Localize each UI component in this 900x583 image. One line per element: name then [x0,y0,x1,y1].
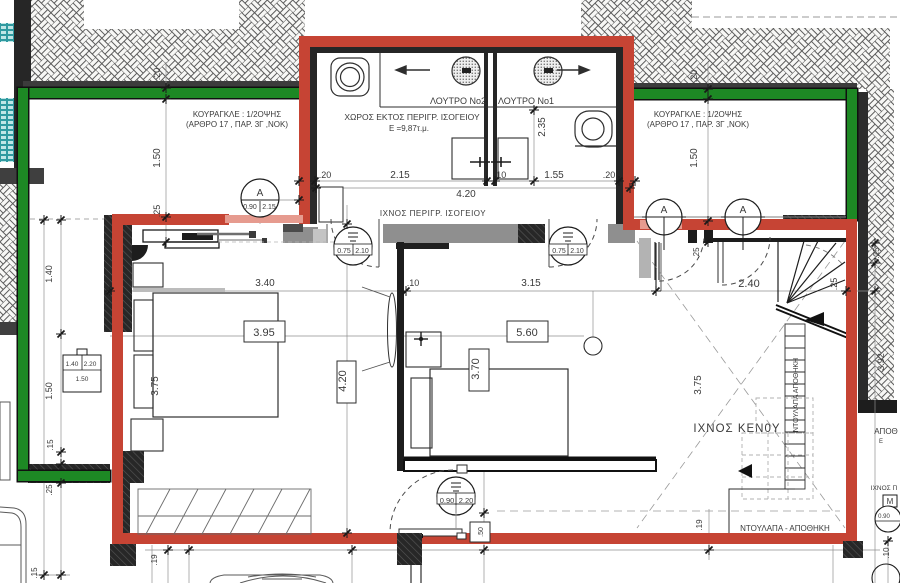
svg-text:3.75: 3.75 [693,375,704,395]
svg-text:.20: .20 [603,170,616,180]
svg-text:.15: .15 [46,439,55,451]
svg-text:2.10: 2.10 [355,248,369,255]
svg-text:3.92: 3.92 [876,353,886,371]
svg-text:.25: .25 [692,247,701,259]
svg-text:1.40: 1.40 [66,361,79,368]
svg-text:ΙΧΝΟΣ ΚΕΝ0Υ: ΙΧΝΟΣ ΚΕΝ0Υ [693,423,780,435]
svg-text:2.40: 2.40 [738,278,759,290]
svg-text:.10: .10 [407,278,420,288]
svg-text:.20: .20 [152,68,162,81]
svg-text:.19: .19 [150,554,159,566]
svg-text:(ΑΡΘΡΟ 17 , ΠΑΡ. 3Γ ,ΝΟΚ): (ΑΡΘΡΟ 17 , ΠΑΡ. 3Γ ,ΝΟΚ) [647,120,749,129]
svg-text:.20: .20 [319,170,332,180]
svg-text:Μ: Μ [887,497,894,506]
svg-text:Ε =9,87τ.μ.: Ε =9,87τ.μ. [389,124,429,133]
svg-text:0.90: 0.90 [243,204,257,211]
svg-text:.15: .15 [30,567,39,579]
svg-text:0.75: 0.75 [552,248,566,255]
svg-text:1.40: 1.40 [44,265,54,283]
svg-text:.25: .25 [152,205,162,218]
svg-text:ΙΧΝΟΣ ΠΕΡΙΓΡ. ΙΣΟΓΕΙΟΥ: ΙΧΝΟΣ ΠΕΡΙΓΡ. ΙΣΟΓΕΙΟΥ [380,209,486,218]
svg-text:A: A [740,205,747,216]
svg-text:ΧΩΡΟΣ ΕΚΤΟΣ ΠΕΡΙΓΡ. ΙΣΟΓΕΙΟΥ: ΧΩΡΟΣ ΕΚΤΟΣ ΠΕΡΙΓΡ. ΙΣΟΓΕΙΟΥ [344,112,480,122]
svg-text:3.95: 3.95 [253,327,274,339]
svg-text:Ε: Ε [879,439,883,445]
svg-text:.10: .10 [882,547,891,559]
svg-text:ΑΠΟΘ: ΑΠΟΘ [874,427,898,436]
svg-text:3.15: 3.15 [521,278,541,289]
svg-text:.20: .20 [689,70,699,83]
svg-text:3.75: 3.75 [150,376,161,396]
svg-text:ΚΟΥΡΑΓΚΛΕ : 1/2ΟΨΗΣ: ΚΟΥΡΑΓΚΛΕ : 1/2ΟΨΗΣ [654,110,742,119]
svg-text:5.60: 5.60 [516,327,537,339]
svg-text:ΝΤΟΥΛΑΠΑ ΑΠΟΘΗΚΗ: ΝΤΟΥΛΑΠΑ ΑΠΟΘΗΚΗ [793,358,800,432]
svg-text:0.90: 0.90 [440,496,455,505]
svg-text:4.20: 4.20 [337,370,349,391]
svg-text:.25: .25 [45,484,54,496]
svg-text:.19: .19 [695,519,704,531]
svg-text:ΛΟΥΤΡΟ No2: ΛΟΥΤΡΟ No2 [430,96,486,106]
svg-text:3.40: 3.40 [255,278,275,289]
svg-text:(ΑΡΘΡΟ 17 , ΠΑΡ. 3Γ ,ΝΟΚ): (ΑΡΘΡΟ 17 , ΠΑΡ. 3Γ ,ΝΟΚ) [186,120,288,129]
svg-text:.25: .25 [872,247,881,259]
svg-text:2.15: 2.15 [390,170,410,181]
svg-text:2.10: 2.10 [570,248,584,255]
svg-text:2.35: 2.35 [537,117,548,137]
svg-text:ΚΟΥΡΑΓΚΛΕ : 1/2ΟΨΗΣ: ΚΟΥΡΑΓΚΛΕ : 1/2ΟΨΗΣ [193,110,281,119]
svg-text:2.15: 2.15 [262,204,276,211]
svg-text:1.50: 1.50 [76,376,89,383]
svg-text:A: A [661,205,668,216]
svg-text:3.70: 3.70 [470,358,482,379]
svg-text:2.20: 2.20 [84,361,97,368]
svg-text:ΛΟΥΤΡΟ No1: ΛΟΥΤΡΟ No1 [498,96,554,106]
svg-text:ΙΧΝΟΣ Π: ΙΧΝΟΣ Π [871,485,898,492]
svg-text:.50: .50 [478,527,485,537]
svg-text:1.55: 1.55 [544,170,564,181]
svg-text:ΝΤΟΥΛΑΠΑ - ΑΠΟΘΗΚΗ: ΝΤΟΥΛΑΠΑ - ΑΠΟΘΗΚΗ [740,524,830,533]
svg-text:0.75: 0.75 [337,248,351,255]
svg-text:1.50: 1.50 [152,148,163,168]
svg-text:0.90: 0.90 [878,514,890,520]
svg-text:2.20: 2.20 [459,496,474,505]
svg-text:1.50: 1.50 [44,382,54,400]
svg-text:4.20: 4.20 [456,189,476,200]
svg-text:1.50: 1.50 [689,148,700,168]
svg-text:.10: .10 [494,170,507,180]
svg-text:A: A [257,188,264,199]
